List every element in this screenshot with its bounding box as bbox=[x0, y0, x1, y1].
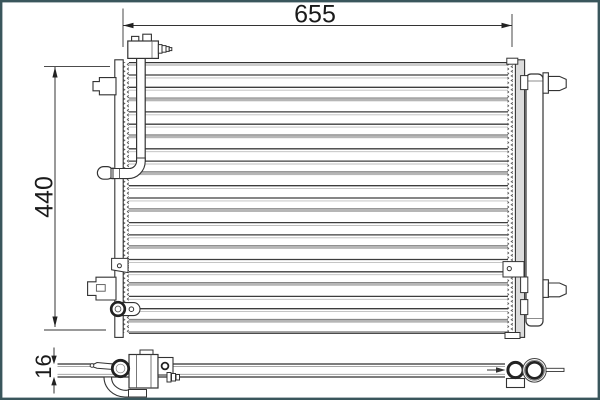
bottom-right-corner-cap bbox=[505, 333, 520, 339]
dimension-height-label: 440 bbox=[31, 176, 59, 218]
side-drier-end bbox=[487, 359, 564, 388]
receiver-drier bbox=[526, 74, 543, 326]
top-fitting bbox=[128, 34, 172, 58]
right-bracket-top bbox=[543, 73, 566, 93]
tube-row bbox=[129, 135, 508, 138]
left-hole-bracket bbox=[112, 258, 128, 272]
core-tubes bbox=[129, 75, 508, 323]
left-port-fitting bbox=[111, 302, 140, 316]
side-drier-bold-ring bbox=[527, 362, 543, 378]
side-view bbox=[58, 350, 565, 397]
tube-row bbox=[129, 209, 508, 212]
front-view bbox=[88, 34, 567, 338]
side-pin bbox=[546, 368, 564, 371]
side-bottom-mount bbox=[129, 390, 147, 398]
pipe-vertical bbox=[137, 58, 146, 161]
nipple-ridge bbox=[169, 48, 172, 51]
left-connector-block bbox=[88, 277, 116, 300]
nipple-ridge bbox=[162, 46, 166, 53]
tube-row bbox=[129, 172, 508, 175]
arrowhead-down bbox=[52, 317, 57, 328]
tube-row bbox=[129, 246, 508, 249]
side-small-ring bbox=[508, 362, 523, 377]
side-arrow bbox=[496, 367, 506, 373]
drier-clamp-lower bbox=[521, 300, 528, 315]
side-valve-body bbox=[129, 355, 158, 389]
top-right-corner-cap bbox=[507, 58, 518, 64]
arrowhead-right bbox=[502, 23, 513, 28]
right-hole-bracket bbox=[503, 262, 524, 277]
tube-row bbox=[129, 282, 508, 285]
dimension-depth-label: 16 bbox=[31, 354, 56, 378]
dimension-width-label: 655 bbox=[294, 1, 336, 29]
arrowhead-up bbox=[52, 67, 57, 78]
right-side-plate bbox=[515, 60, 524, 338]
side-nipple-ridge bbox=[176, 375, 180, 381]
nipple-ridge bbox=[158, 45, 162, 54]
arrowhead-left bbox=[123, 23, 134, 28]
side-nipple-ridge bbox=[167, 373, 171, 383]
right-fin-serration bbox=[507, 62, 513, 333]
drier-clamp-top bbox=[521, 76, 528, 90]
right-bracket-middle bbox=[543, 280, 566, 298]
tube-row bbox=[129, 98, 508, 101]
dimension-width: 655 bbox=[123, 1, 512, 48]
side-valve-assembly bbox=[90, 350, 179, 397]
dimension-depth: 16 bbox=[31, 348, 57, 394]
left-fin-serration bbox=[123, 62, 129, 333]
side-nipple-ridge bbox=[172, 374, 176, 382]
condenser-diagram: 655 440 bbox=[0, 0, 600, 400]
left-bracket-top bbox=[93, 78, 116, 95]
drawing-frame: 655 440 bbox=[0, 0, 600, 400]
drier-clamp-middle bbox=[521, 277, 528, 293]
side-elbow-pipe bbox=[104, 377, 130, 397]
tube-row bbox=[129, 319, 508, 322]
